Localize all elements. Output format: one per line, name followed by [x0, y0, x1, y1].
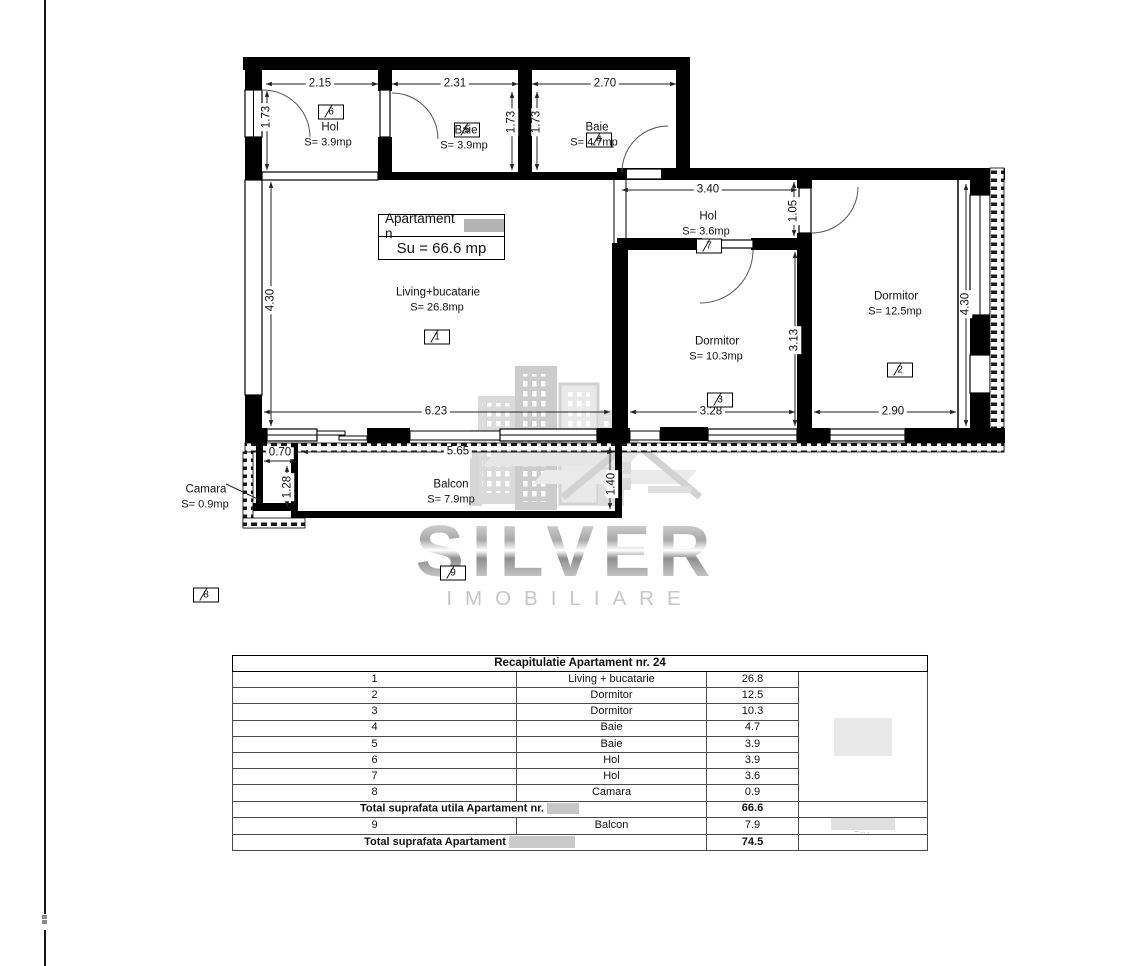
row-name: Baie: [517, 736, 707, 752]
row-no: 3: [233, 704, 517, 720]
dim-6.23: 6.23: [422, 406, 450, 418]
dim-2.90: 2.90: [879, 406, 907, 418]
dim-1.73-b: 1.73: [506, 108, 518, 136]
recap-table: Recapitulatie Apartament nr. 24 1Living …: [232, 655, 928, 851]
faint-marks: ‒‥,: [799, 830, 927, 834]
dim-1.05: 1.05: [788, 197, 800, 225]
row-area: 3.6: [707, 769, 799, 785]
row-name: Hol: [517, 769, 707, 785]
room-1-area: S= 26.8mp: [410, 303, 464, 314]
watermark-imobiliare-text: IMOBILIARE: [446, 587, 693, 610]
room-8-number: 8: [193, 588, 219, 603]
redaction-box: [509, 836, 575, 848]
dim-1.28: 1.28: [282, 473, 294, 501]
row-name: Balcon: [517, 817, 707, 834]
recap-title: Recapitulatie Apartament nr. 24: [233, 656, 928, 672]
dim-2.15: 2.15: [306, 78, 334, 90]
row-area: 10.3: [707, 704, 799, 720]
row-area: 26.8: [707, 672, 799, 688]
total-row: Total suprafata Apartament 74.5: [233, 834, 928, 850]
balcon-row: 9 Balcon 7.9 ‒‥,: [233, 817, 928, 834]
row-name: Hol: [517, 752, 707, 768]
room-6-name: Hol: [321, 122, 338, 134]
room-2-area: S= 12.5mp: [868, 307, 922, 318]
room-9-area: S= 7.9mp: [427, 495, 474, 506]
room-9-number: 9: [440, 566, 466, 581]
dim-5.65: 5.65: [444, 446, 472, 458]
row-area: 12.5: [707, 688, 799, 704]
room-7-name: Hol: [699, 211, 716, 223]
room-8-area: S= 0.9mp: [181, 500, 228, 511]
redaction-box: [834, 718, 892, 756]
row-name: Living + bucatarie: [517, 672, 707, 688]
dim-1.73-c: 1.73: [531, 108, 543, 136]
apartment-title-box: Apartament n Su = 66.6 mp: [378, 214, 505, 260]
row-no: 4: [233, 720, 517, 736]
apartment-title: Apartament n: [385, 211, 462, 241]
dim-4.30-right: 4.30: [960, 290, 972, 318]
room-2-name: Dormitor: [874, 291, 918, 303]
room-1-number: 1: [424, 330, 450, 345]
dim-4.30-left: 4.30: [265, 286, 277, 314]
total-value: 74.5: [707, 834, 799, 850]
room-6-area: S= 3.9mp: [304, 138, 351, 149]
room-3-area: S= 10.3mp: [689, 352, 743, 363]
apartment-su: Su = 66.6 mp: [379, 237, 504, 259]
dim-3.28: 3.28: [697, 406, 725, 418]
row-no: 9: [233, 817, 517, 834]
row-name: Baie: [517, 720, 707, 736]
row-no: 1: [233, 672, 517, 688]
row-area: 3.9: [707, 752, 799, 768]
table-row: 1Living + bucatarie26.8: [233, 672, 928, 688]
door-arcs: [263, 90, 858, 303]
row-no: 2: [233, 688, 517, 704]
side-cell: ‒‥,: [799, 817, 928, 834]
room-4-area: S= 4.7mp: [570, 138, 617, 149]
total-utila-row: Total suprafata utila Apartament nr. 66.…: [233, 801, 928, 817]
total-label: Total suprafata Apartament: [233, 834, 707, 850]
room-4-name: Baie: [585, 122, 608, 134]
room-3-number: 3: [707, 393, 733, 408]
row-no: 6: [233, 752, 517, 768]
room-5-area: S= 3.9mp: [440, 141, 487, 152]
row-no: 8: [233, 785, 517, 801]
row-no: 7: [233, 769, 517, 785]
dim-3.13: 3.13: [789, 326, 801, 354]
redaction-box: [547, 803, 579, 814]
room-3-name: Dormitor: [695, 336, 739, 348]
room-1-name: Living+bucatarie: [396, 287, 480, 299]
total-utila-value: 66.6: [707, 801, 799, 817]
row-area: 3.9: [707, 736, 799, 752]
room-9-name: Balcon: [433, 479, 468, 491]
row-area: 0.9: [707, 785, 799, 801]
row-no: 5: [233, 736, 517, 752]
room-6-number: 6: [318, 105, 344, 120]
row-name: Dormitor: [517, 688, 707, 704]
side-cell: [799, 672, 928, 802]
dim-2.31: 2.31: [441, 78, 469, 90]
row-name: Camara: [517, 785, 707, 801]
side-cell: [799, 834, 928, 850]
side-cell: [799, 801, 928, 817]
floor-plan-page: SILVER IMOBILIARE: [0, 0, 1137, 966]
room-5-name: Baie: [454, 125, 477, 137]
row-area: 7.9: [707, 817, 799, 834]
dim-1.40: 1.40: [606, 470, 618, 498]
room-7-area: S= 3.6mp: [682, 227, 729, 238]
row-area: 4.7: [707, 720, 799, 736]
room-2-number: 2: [887, 363, 913, 378]
room-7-number: 7: [696, 239, 722, 254]
dim-0.70: 0.70: [266, 447, 294, 459]
dim-2.70: 2.70: [591, 78, 619, 90]
row-name: Dormitor: [517, 704, 707, 720]
total-utila-label: Total suprafata utila Apartament nr.: [233, 801, 707, 817]
room-8-name: Camara: [186, 484, 227, 496]
dim-3.40: 3.40: [694, 184, 722, 196]
redaction-box: [464, 219, 504, 232]
dim-1.73-a: 1.73: [261, 103, 273, 131]
